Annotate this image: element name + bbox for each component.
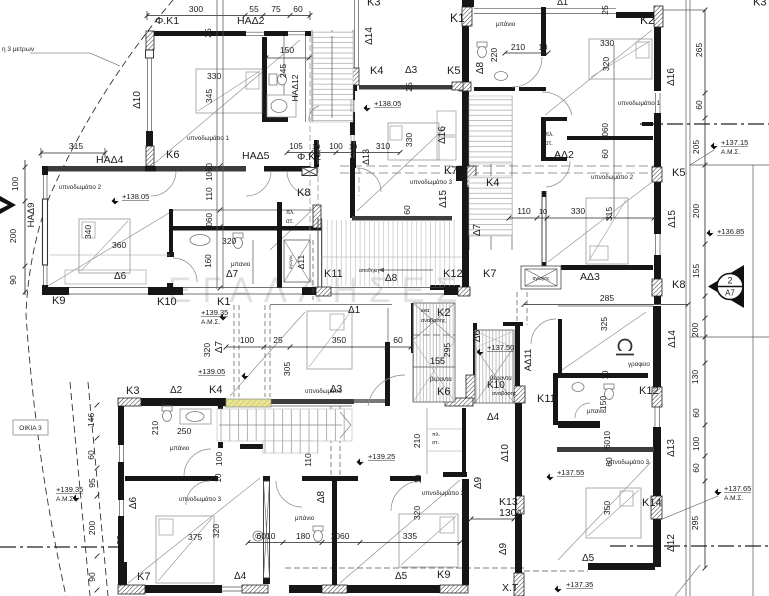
svg-text:Φ.Κ1: Φ.Κ1 [155, 15, 179, 27]
svg-text:155: 155 [430, 356, 445, 366]
svg-text:10: 10 [312, 142, 320, 151]
svg-text:Κ12: Κ12 [639, 385, 659, 397]
svg-text:υπνοδωμάτιο 2: υπνοδωμάτιο 2 [59, 184, 102, 191]
svg-text:60: 60 [691, 408, 701, 418]
svg-text:Κ1: Κ1 [450, 11, 465, 25]
svg-text:+136.85: +136.85 [717, 227, 744, 236]
svg-text:μπανιο: μπανιο [231, 261, 251, 268]
svg-text:αναβασης: αναβασης [421, 318, 446, 324]
svg-text:320: 320 [412, 506, 422, 520]
svg-text:350: 350 [332, 335, 346, 345]
svg-text:υπνοδωμάτιο 3: υπνοδωμάτιο 3 [410, 179, 453, 186]
svg-text:155: 155 [691, 264, 701, 278]
svg-text:Α.Μ.Σ.: Α.Μ.Σ. [724, 495, 743, 502]
svg-text:335: 335 [403, 531, 417, 541]
svg-text:295: 295 [442, 343, 452, 357]
svg-text:Δ5: Δ5 [582, 553, 595, 564]
svg-text:90: 90 [87, 572, 97, 582]
svg-text:100: 100 [691, 437, 701, 451]
svg-text:6010: 6010 [603, 431, 612, 449]
svg-text:Δ6: Δ6 [114, 271, 127, 282]
svg-text:Κ4: Κ4 [209, 384, 222, 396]
svg-text:Δ14: Δ14 [667, 330, 678, 348]
svg-text:Δ7: Δ7 [214, 340, 225, 353]
svg-text:Κ5: Κ5 [672, 167, 685, 179]
svg-text:Δ13: Δ13 [666, 439, 677, 457]
svg-text:25: 25 [273, 335, 283, 345]
svg-text:315: 315 [69, 141, 83, 151]
svg-text:330: 330 [207, 71, 221, 81]
svg-text:Δ10: Δ10 [500, 444, 511, 462]
svg-text:1060: 1060 [601, 123, 610, 141]
svg-text:ΗΑΔ12: ΗΑΔ12 [290, 74, 300, 101]
svg-text:Κ7: Κ7 [444, 165, 457, 177]
svg-text:100: 100 [329, 142, 343, 151]
svg-text:100: 100 [240, 335, 254, 345]
svg-text:60: 60 [694, 100, 704, 110]
svg-text:Κ14: Κ14 [642, 497, 662, 509]
svg-text:πλ.: πλ. [545, 132, 554, 138]
svg-text:60: 60 [600, 149, 610, 159]
svg-text:345: 345 [204, 89, 214, 103]
svg-text:146: 146 [86, 413, 96, 427]
svg-text:Δ6: Δ6 [472, 329, 483, 342]
svg-text:Δ8: Δ8 [475, 61, 486, 74]
svg-text:Δ13: Δ13 [361, 149, 371, 165]
svg-text:265: 265 [694, 43, 704, 57]
svg-text:+139.25: +139.25 [368, 452, 395, 461]
svg-text:+138.05: +138.05 [374, 99, 401, 108]
svg-text:320: 320 [601, 57, 611, 71]
svg-text:200: 200 [691, 204, 701, 218]
svg-text:μπανιο: μπανιο [587, 408, 607, 415]
svg-text:160: 160 [204, 254, 213, 268]
svg-text:Α.Μ.Σ.: Α.Μ.Σ. [56, 496, 75, 503]
svg-text:10: 10 [214, 473, 223, 482]
svg-text:75: 75 [271, 4, 281, 14]
svg-text:ΗΑΔ2: ΗΑΔ2 [237, 15, 265, 27]
svg-text:Κ1: Κ1 [217, 296, 230, 308]
svg-text:+139.35: +139.35 [201, 308, 228, 317]
svg-text:Δ3: Δ3 [405, 65, 418, 76]
svg-text:Δ15: Δ15 [438, 190, 449, 208]
svg-text:150: 150 [280, 45, 294, 55]
svg-text:325: 325 [599, 317, 609, 331]
svg-text:Δ2: Δ2 [170, 385, 183, 396]
svg-text:330: 330 [600, 38, 614, 48]
svg-text:330: 330 [404, 133, 414, 147]
svg-text:υπνοδωμάτιο: υπνοδωμάτιο [305, 388, 342, 395]
svg-text:Κ5: Κ5 [447, 65, 460, 77]
svg-text:ΗΑΔ5: ΗΑΔ5 [242, 150, 270, 162]
svg-text:Δ5: Δ5 [395, 571, 408, 582]
svg-text:+138.05: +138.05 [122, 192, 149, 201]
svg-text:Δ6: Δ6 [128, 496, 139, 509]
svg-text:Δ4: Δ4 [234, 571, 247, 582]
svg-text:η 3 μετρων: η 3 μετρων [2, 46, 34, 53]
svg-text:ΑΔ2: ΑΔ2 [554, 149, 574, 161]
svg-text:200: 200 [690, 323, 700, 337]
svg-text:+137.65: +137.65 [724, 484, 751, 493]
svg-text:Κ7: Κ7 [137, 571, 150, 583]
svg-text:210: 210 [412, 434, 422, 448]
svg-text:Κ4: Κ4 [370, 65, 383, 77]
svg-text:Δ15: Δ15 [667, 210, 678, 228]
svg-text:Κ2: Κ2 [640, 13, 655, 27]
svg-text:πλ.: πλ. [286, 210, 295, 216]
svg-text:πλ.: πλ. [432, 432, 441, 438]
svg-text:100: 100 [10, 177, 20, 191]
svg-text:Κ3: Κ3 [367, 0, 380, 9]
svg-text:25: 25 [203, 28, 213, 38]
svg-text:200: 200 [87, 521, 97, 535]
svg-text:αγωγός: αγωγός [533, 275, 551, 282]
svg-text:+139.35: +139.35 [56, 485, 83, 494]
svg-text:ΗΑΔ9: ΗΑΔ9 [26, 203, 37, 228]
svg-text:Κ4: Κ4 [486, 177, 499, 189]
svg-text:A7: A7 [725, 289, 735, 298]
svg-text:Κ8: Κ8 [297, 187, 310, 199]
svg-text:ΗΑΔ4: ΗΑΔ4 [96, 154, 124, 166]
svg-text:210: 210 [150, 421, 160, 435]
svg-text:Δ7: Δ7 [226, 269, 239, 280]
svg-text:25: 25 [600, 5, 610, 15]
svg-text:110: 110 [204, 187, 214, 201]
svg-text:+137.35: +137.35 [566, 580, 593, 589]
svg-text:αγωγος: αγωγος [288, 255, 293, 269]
svg-text:ΟΙΚΙΑ 3: ΟΙΚΙΑ 3 [19, 425, 42, 432]
svg-text:6010: 6010 [257, 531, 276, 541]
svg-text:υπνοδωμάτιο 1: υπνοδωμάτιο 1 [187, 135, 230, 142]
svg-text:στ.: στ. [545, 141, 553, 147]
svg-text:ΑΔ11: ΑΔ11 [523, 349, 534, 372]
svg-text:360: 360 [112, 240, 126, 250]
svg-text:αναβασης: αναβασης [492, 391, 517, 397]
svg-text:2: 2 [727, 276, 732, 286]
svg-text:375: 375 [188, 532, 202, 542]
svg-text:Δ1: Δ1 [348, 305, 361, 316]
svg-text:60: 60 [691, 463, 701, 473]
svg-text:+139.05: +139.05 [198, 367, 225, 376]
svg-text:υπνοδωμάτιο 2: υπνοδωμάτιο 2 [422, 490, 465, 497]
svg-text:Κ11: Κ11 [537, 393, 556, 405]
svg-text:340: 340 [83, 225, 93, 239]
svg-text:55: 55 [249, 4, 259, 14]
svg-text:285: 285 [600, 293, 614, 303]
svg-text:10: 10 [539, 207, 547, 216]
svg-text:350: 350 [602, 501, 612, 515]
svg-text:1060: 1060 [205, 163, 214, 181]
svg-text:Κ3: Κ3 [753, 0, 766, 9]
svg-text:60: 60 [393, 335, 403, 345]
svg-text:10: 10 [349, 142, 357, 151]
svg-text:10: 10 [414, 474, 423, 483]
svg-text:Δ11: Δ11 [296, 254, 306, 269]
svg-text:Δ7: Δ7 [472, 223, 483, 236]
svg-text:60: 60 [86, 450, 96, 460]
svg-text:330: 330 [571, 206, 585, 216]
svg-text:250: 250 [177, 426, 191, 436]
svg-text:305: 305 [282, 362, 292, 376]
svg-text:Α.Μ.Σ.: Α.Μ.Σ. [721, 149, 740, 156]
svg-text:320: 320 [202, 343, 212, 357]
svg-text:90: 90 [8, 275, 18, 285]
svg-text:320: 320 [222, 236, 236, 246]
svg-text:Κ7: Κ7 [483, 268, 496, 280]
svg-text:25: 25 [404, 82, 414, 92]
svg-text:Κ3: Κ3 [126, 385, 139, 397]
svg-text:Χ.Τ: Χ.Τ [502, 582, 519, 594]
svg-text:Δ12: Δ12 [666, 534, 677, 552]
svg-text:Δ16: Δ16 [666, 68, 677, 86]
svg-text:υπνοδωμάτιο 3: υπνοδωμάτιο 3 [607, 459, 650, 466]
svg-text:105: 105 [289, 142, 303, 151]
svg-text:Δ9: Δ9 [498, 542, 509, 555]
svg-text:10: 10 [539, 43, 548, 52]
svg-text:μπάνιο: μπάνιο [170, 445, 190, 452]
svg-text:υπνοδωμάτιο 2: υπνοδωμάτιο 2 [591, 174, 634, 181]
svg-text:Δ10: Δ10 [132, 91, 143, 109]
svg-text:315: 315 [604, 207, 614, 221]
svg-text:Κ12: Κ12 [443, 268, 463, 280]
svg-text:γραφειο: γραφειο [628, 361, 650, 368]
svg-text:Κ9: Κ9 [437, 569, 450, 581]
svg-text:+137.15: +137.15 [721, 138, 748, 147]
svg-text:Κ6: Κ6 [437, 386, 450, 398]
svg-text:υπνοδωμάτιο 3: υπνοδωμάτιο 3 [179, 496, 222, 503]
svg-text:βεραντα: βεραντα [430, 377, 452, 383]
svg-text:95: 95 [87, 478, 97, 488]
svg-text:μπάνιο: μπάνιο [295, 515, 315, 522]
svg-text:εκα: εκα [421, 308, 430, 314]
svg-text:205: 205 [691, 140, 701, 154]
svg-text:180: 180 [296, 531, 310, 541]
svg-text:+137.55: +137.55 [557, 468, 584, 477]
svg-text:υπνοδωμάτιο 1: υπνοδωμάτιο 1 [618, 100, 661, 107]
svg-text:βεραντα: βεραντα [490, 376, 512, 382]
svg-text:210: 210 [511, 42, 525, 52]
svg-text:Κ11: Κ11 [324, 268, 343, 280]
svg-text:295: 295 [690, 516, 700, 530]
svg-text:130: 130 [690, 370, 700, 384]
svg-text:110: 110 [303, 453, 313, 467]
svg-text:60: 60 [293, 4, 303, 14]
svg-text:200: 200 [8, 229, 18, 243]
svg-text:Δ8: Δ8 [385, 273, 398, 284]
svg-text:στ.: στ. [286, 219, 294, 225]
svg-text:Δ14: Δ14 [364, 27, 375, 45]
svg-text:ΑΔ3: ΑΔ3 [580, 271, 600, 283]
svg-text:Κ8: Κ8 [672, 279, 685, 291]
svg-text:+137.50: +137.50 [487, 343, 514, 352]
svg-text:αποθηκη: αποθηκη [359, 268, 379, 274]
svg-text:Κ10: Κ10 [157, 296, 177, 308]
svg-text:Κ9: Κ9 [52, 295, 65, 307]
svg-text:1060: 1060 [331, 531, 350, 541]
svg-text:Δ4: Δ4 [487, 412, 500, 423]
svg-text:220: 220 [489, 48, 499, 62]
svg-text:320: 320 [211, 524, 221, 538]
svg-text:25: 25 [115, 535, 125, 545]
svg-text:Φ.Κ2: Φ.Κ2 [297, 151, 321, 163]
svg-text:310: 310 [376, 141, 390, 151]
svg-text:Δ1: Δ1 [557, 0, 568, 7]
svg-text:Δ16: Δ16 [437, 126, 448, 144]
svg-text:110: 110 [517, 206, 531, 216]
svg-text:Δ8: Δ8 [316, 490, 327, 503]
svg-text:στ.: στ. [432, 440, 440, 446]
svg-text:100: 100 [214, 452, 224, 466]
svg-text:Δ9: Δ9 [473, 476, 484, 489]
svg-text:25: 25 [513, 509, 523, 519]
svg-text:Κ6: Κ6 [166, 149, 179, 161]
svg-text:Α.Μ.Σ.: Α.Μ.Σ. [201, 319, 220, 326]
svg-text:245: 245 [278, 64, 288, 78]
svg-text:1060: 1060 [205, 213, 214, 231]
svg-text:300: 300 [189, 4, 203, 14]
svg-text:60: 60 [402, 205, 412, 215]
svg-text:μπάνιο: μπάνιο [496, 21, 516, 28]
svg-text:10: 10 [601, 370, 610, 379]
